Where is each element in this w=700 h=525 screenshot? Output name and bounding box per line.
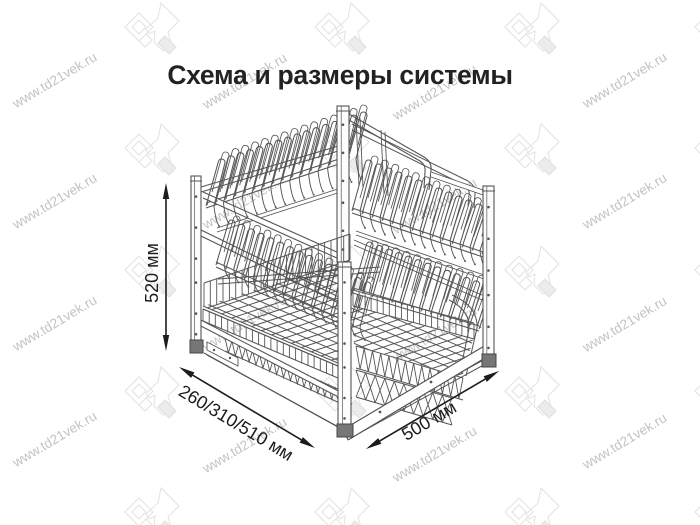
svg-text:520 мм: 520 мм: [142, 243, 162, 303]
svg-text:Схема и размеры системы: Схема и размеры системы: [167, 60, 512, 90]
